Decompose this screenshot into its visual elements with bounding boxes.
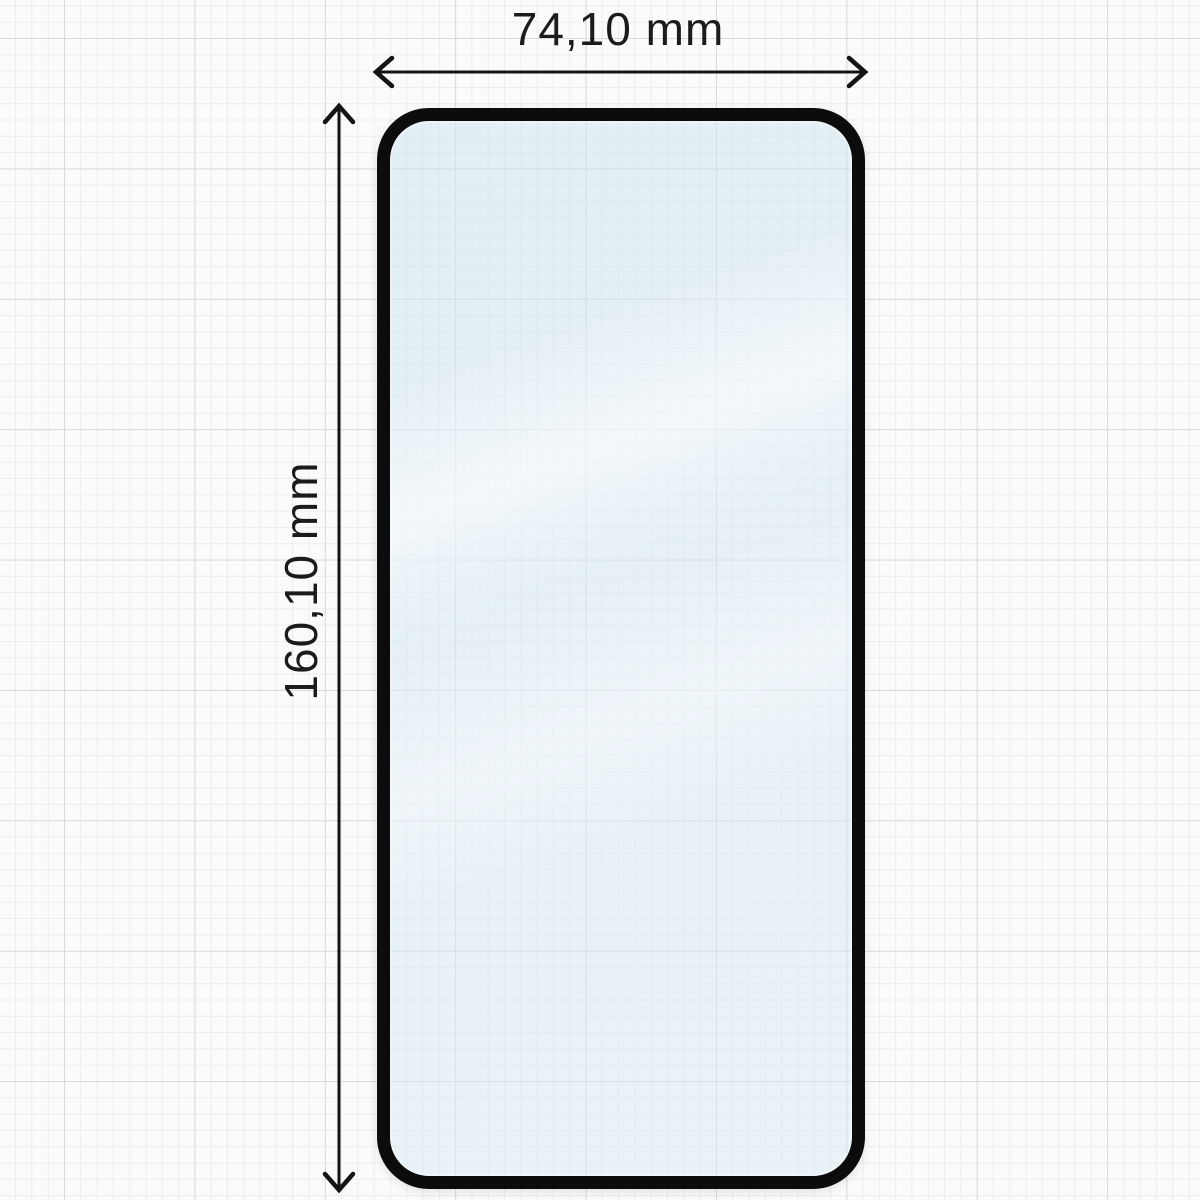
arrowhead-right-icon — [849, 58, 865, 86]
graph-paper-canvas: 74,10 mm 160,10 mm — [0, 0, 1200, 1200]
width-dimension-arrow — [376, 58, 865, 86]
height-dimension-arrow — [325, 106, 353, 1190]
arrowhead-up-icon — [325, 106, 353, 122]
arrowhead-down-icon — [325, 1174, 353, 1190]
width-dimension-label: 74,10 mm — [512, 2, 725, 56]
height-dimension-label: 160,10 mm — [274, 461, 328, 700]
arrowhead-left-icon — [376, 58, 392, 86]
screen-protector-glass — [377, 108, 865, 1189]
